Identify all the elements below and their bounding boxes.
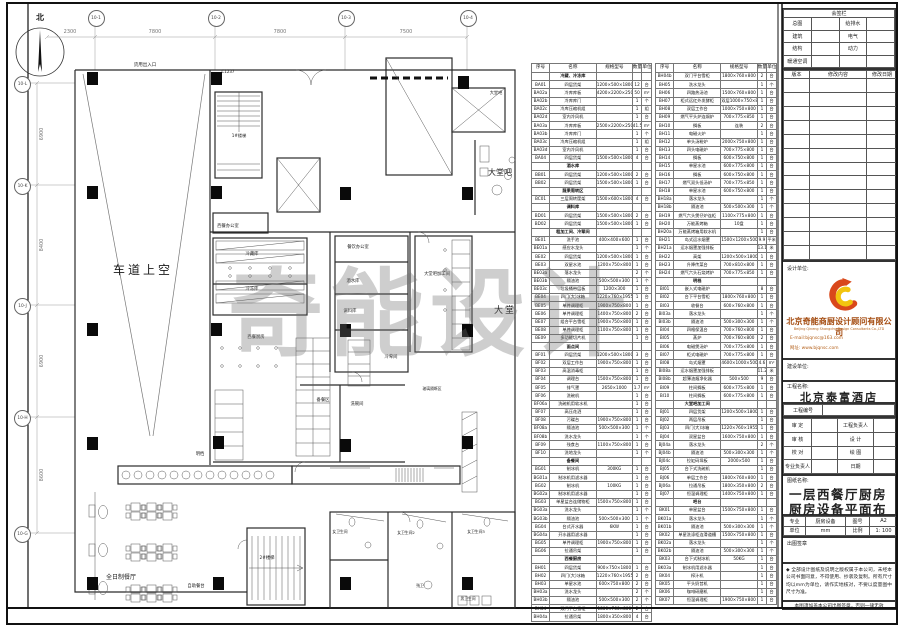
dimension-label: 7800 [149, 29, 162, 35]
grid-bubble: 10-2 [208, 10, 225, 27]
dimension-label: 7800 [274, 29, 287, 35]
grid-bubble: 10-G [14, 526, 31, 543]
dimension-label: 2300 [64, 29, 77, 35]
grid-bubble: 10-K [14, 178, 31, 195]
grid-bubble: 10-H [14, 410, 31, 427]
dimension-label: 6900 [39, 128, 45, 141]
grid-bubble: 10-3 [338, 10, 355, 27]
dimension-label: 8400 [39, 239, 45, 252]
dimension-label: 7500 [400, 29, 413, 35]
drawing-sheet: 北货用出入口C12371#楼梯大堂吧大堂吧车道上空西餐办公室冷藏库冷冻库餐饮办公… [0, 0, 900, 629]
dimension-label: 8600 [39, 469, 45, 482]
dimension-label: 6900 [39, 355, 45, 368]
grid-bubble: 10-1 [88, 10, 105, 27]
grid-bubble: 10-4 [460, 10, 477, 27]
grid-bubble: 10-J [14, 298, 31, 315]
grid-bubble: 10-L [14, 76, 31, 93]
grid-bubbles: 10-110-210-310-410-L10-K10-J10-H10-G2300… [0, 0, 530, 629]
